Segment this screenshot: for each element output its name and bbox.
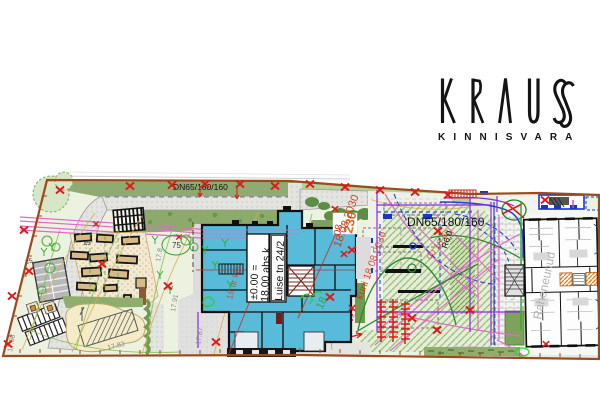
svg-text:DN65/180/160: DN65/180/160: [407, 215, 485, 229]
svg-text:KINNISVARA: KINNISVARA: [438, 132, 580, 143]
svg-text:75: 75: [172, 241, 181, 250]
svg-text:Luise tn 24/2: Luise tn 24/2: [273, 240, 287, 301]
